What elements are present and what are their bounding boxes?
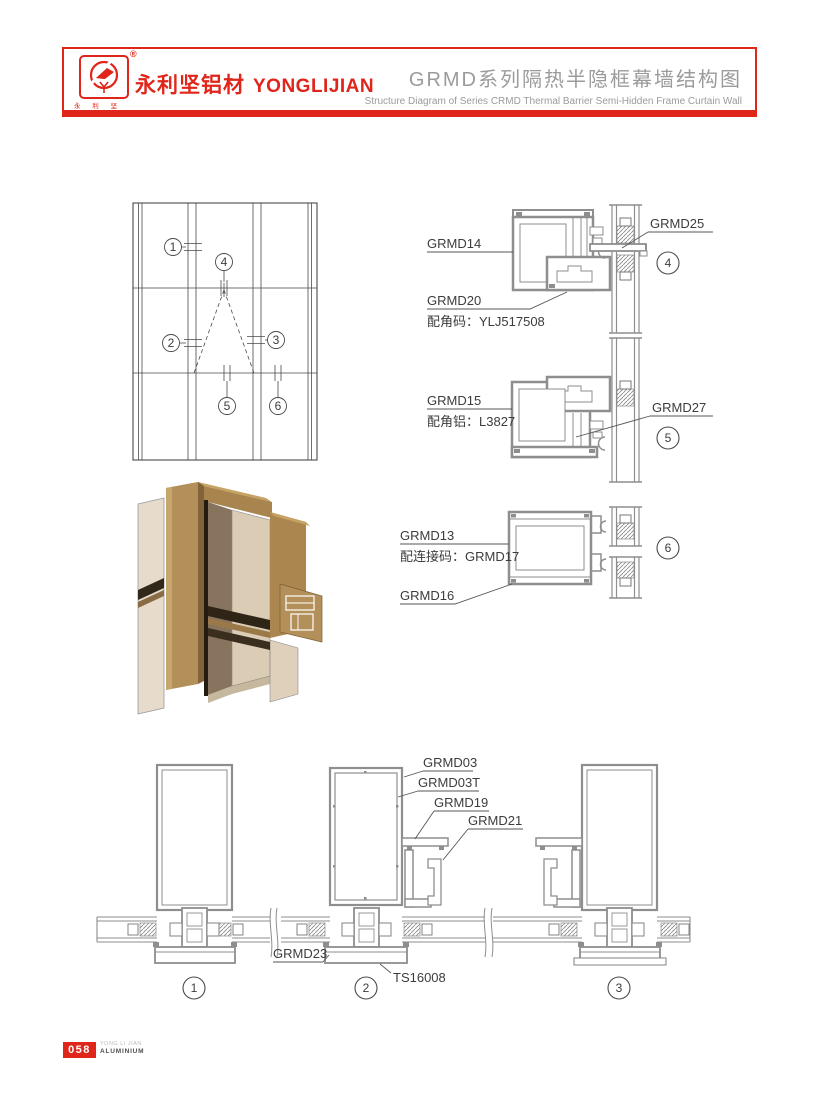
label-grmd13: GRMD13	[400, 528, 454, 543]
logo-caption: 永 利 坚	[74, 100, 134, 110]
callout-4: 4	[221, 255, 228, 269]
page-title: GRMD系列隔热半隐框幕墙结构图 Structure Diagram of Se…	[365, 63, 742, 107]
page-number-badge: 058	[63, 1042, 96, 1058]
label-grmd19: GRMD19	[434, 795, 488, 810]
label-grmd13-note: 配连接码：GRMD17	[400, 549, 519, 564]
page-header: ® 永 利 坚 永利坚铝材 YONGLIJIAN GRMD系列隔热半隐框幕墙结构…	[62, 47, 757, 117]
label-ts16008: TS16008	[393, 970, 446, 985]
label-grmd03: GRMD03	[423, 755, 477, 770]
label-grmd20: GRMD20	[427, 293, 481, 308]
logo-emblem-icon	[81, 57, 127, 97]
section-details-bottom: GRMD03 GRMD03T GRMD19 GRMD21 GRMD23 TS16…	[95, 745, 780, 1015]
glass-unit-column	[609, 205, 642, 598]
callout-6: 6	[275, 399, 282, 413]
callout-5: 5	[665, 431, 672, 445]
callout-1: 1	[170, 240, 177, 254]
callout-1: 1	[191, 981, 198, 995]
detail-6-profiles	[509, 512, 606, 584]
elevation-diagram: 1 2 3 4 5 6	[128, 200, 320, 462]
label-grmd16: GRMD16	[400, 588, 454, 603]
label-grmd14: GRMD14	[427, 236, 481, 251]
label-grmd03t: GRMD03T	[418, 775, 480, 790]
footer-company-name: YONG LI JIAN	[100, 1042, 144, 1048]
company-logo	[79, 55, 129, 99]
footer-company-industry: ALUMINIUM	[100, 1049, 144, 1056]
label-grmd15-note: 配角铝：L3827	[427, 414, 515, 429]
callout-3: 3	[616, 981, 623, 995]
label-grmd15: GRMD15	[427, 393, 481, 408]
callout-6: 6	[665, 541, 672, 555]
opening-direction-dashed	[194, 290, 254, 373]
callout-5: 5	[224, 399, 231, 413]
elevation-grid	[133, 203, 317, 460]
detail-5-profiles	[512, 377, 610, 457]
brand-name: 永利坚铝材 YONGLIJIAN	[135, 69, 374, 99]
callout-2: 2	[168, 336, 175, 350]
section-details-right: GRMD14 GRMD20 配角码：YLJ517508 GRMD25 GRMD1…	[395, 185, 725, 630]
label-grmd21: GRMD21	[468, 813, 522, 828]
assembly-3d-render	[120, 478, 360, 733]
callout-3: 3	[273, 333, 280, 347]
callout-4: 4	[665, 256, 672, 270]
elevation-callouts: 1 2 3 4 5 6	[163, 239, 287, 415]
footer-company: YONG LI JIAN ALUMINIUM	[100, 1042, 144, 1055]
page-title-english: Structure Diagram of Series CRMD Thermal…	[365, 96, 742, 107]
callout-2: 2	[363, 981, 370, 995]
label-grmd27: GRMD27	[652, 400, 706, 415]
brand-english: YONGLIJIAN	[253, 76, 374, 98]
registered-trademark: ®	[130, 49, 137, 59]
label-grmd20-note: 配角码：YLJ517508	[427, 314, 545, 329]
brand-chinese: 永利坚铝材	[135, 69, 245, 99]
label-grmd23: GRMD23	[273, 946, 327, 961]
page-title-chinese: GRMD系列隔热半隐框幕墙结构图	[365, 63, 742, 92]
label-grmd25: GRMD25	[650, 216, 704, 231]
render-shapes	[138, 482, 322, 714]
